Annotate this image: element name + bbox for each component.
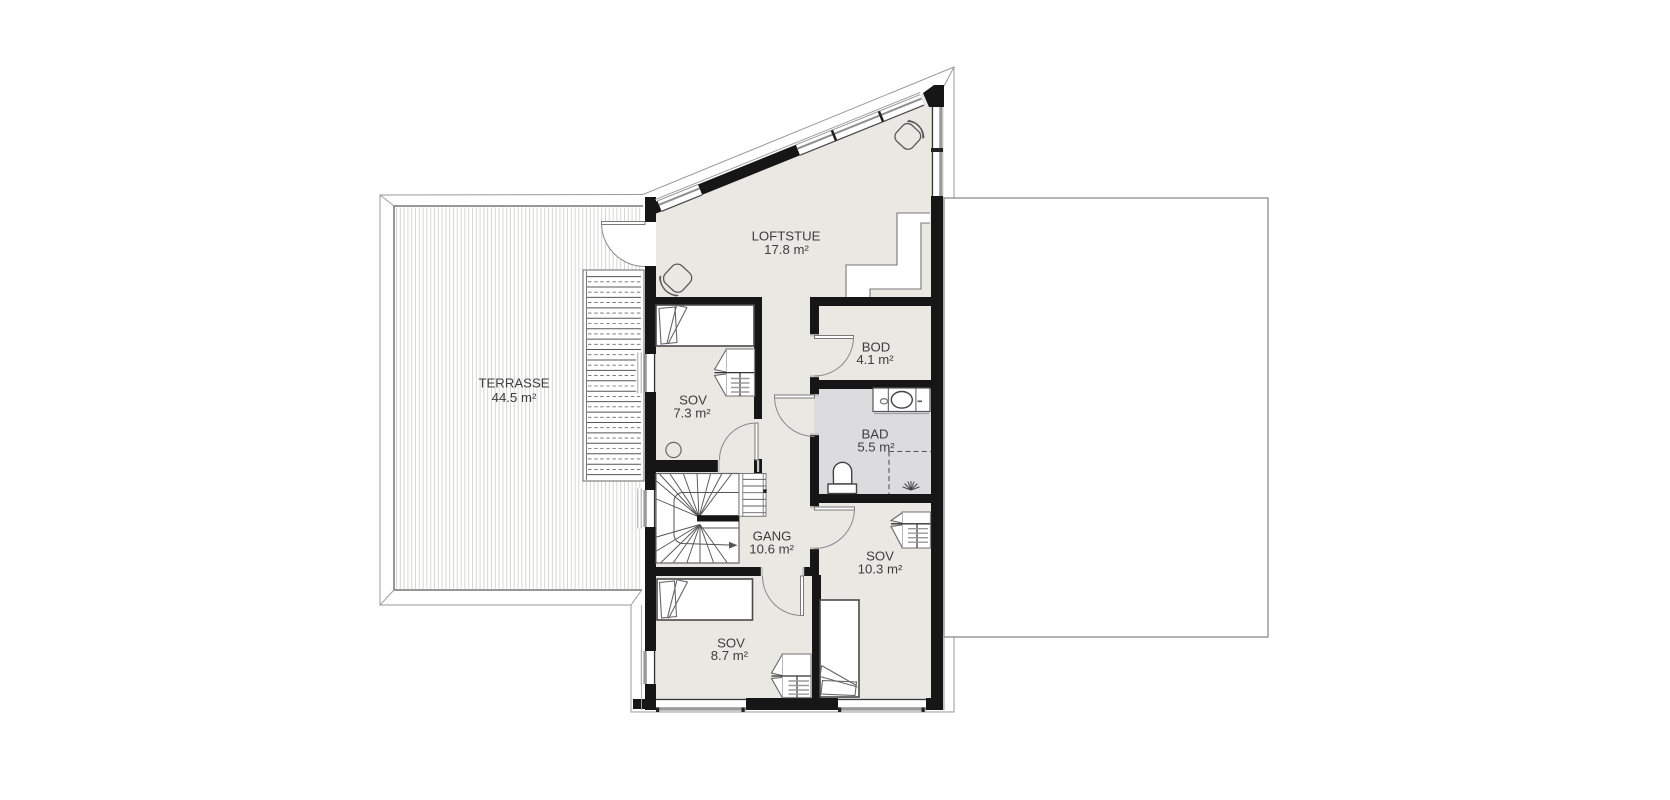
svg-text:10.6 m²: 10.6 m² xyxy=(749,542,794,557)
svg-text:44.5 m²: 44.5 m² xyxy=(492,390,537,405)
svg-text:TERRASSE: TERRASSE xyxy=(478,376,549,391)
svg-text:4.1 m²: 4.1 m² xyxy=(856,352,894,367)
svg-text:8.7 m²: 8.7 m² xyxy=(711,648,749,663)
svg-text:10.3 m²: 10.3 m² xyxy=(858,562,903,577)
svg-text:5.5 m²: 5.5 m² xyxy=(857,440,895,455)
svg-text:17.8 m²: 17.8 m² xyxy=(764,242,809,257)
svg-text:7.3 m²: 7.3 m² xyxy=(673,406,711,421)
